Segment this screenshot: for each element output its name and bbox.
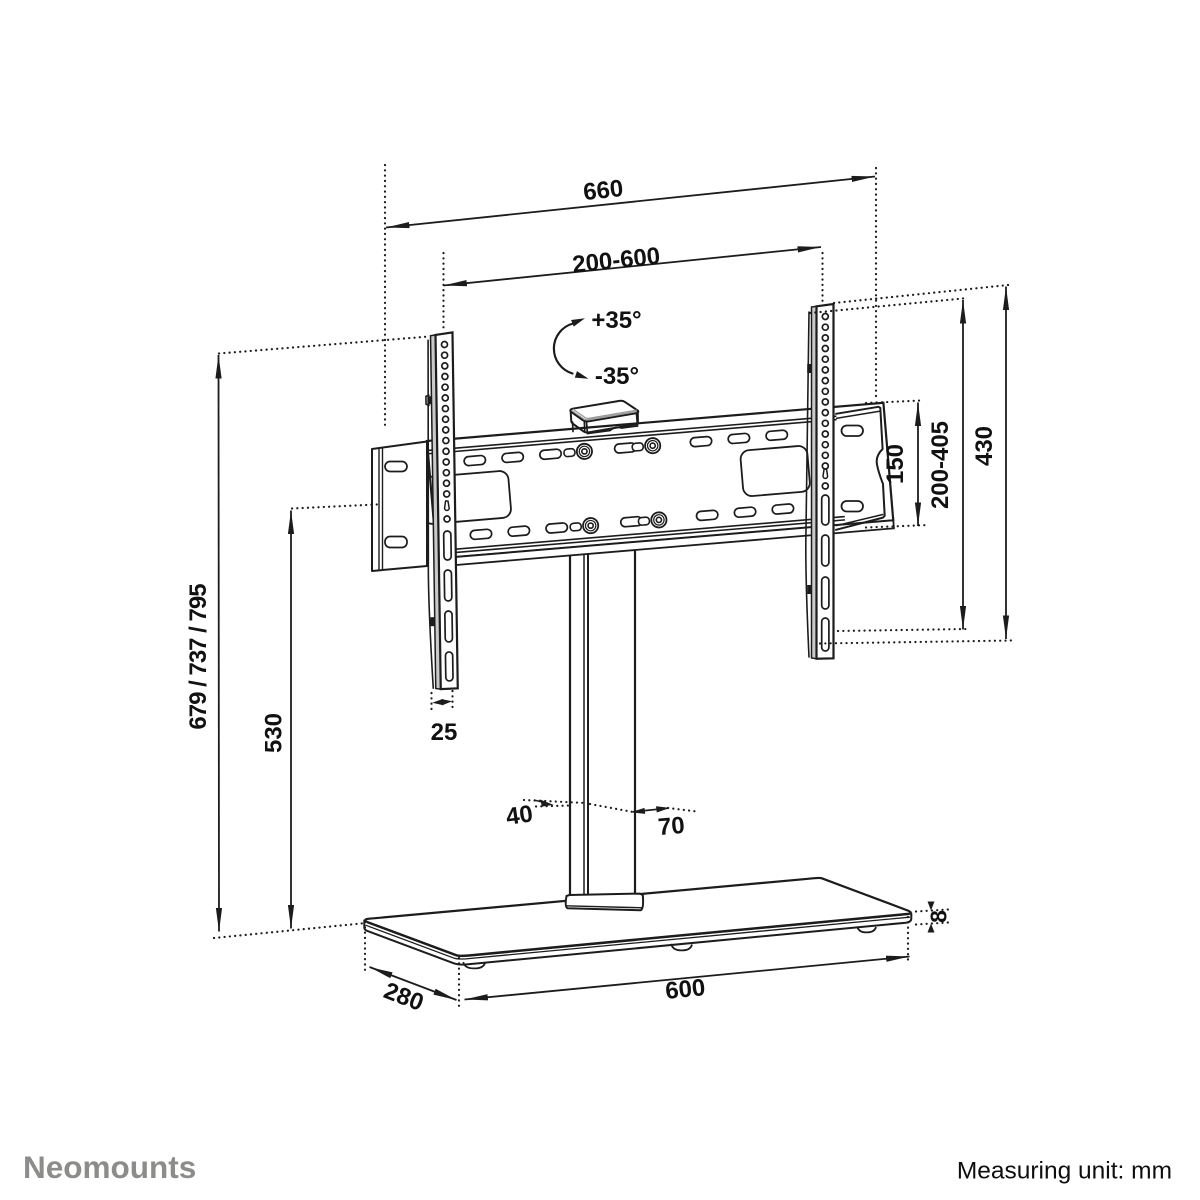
svg-text:679 / 737 / 795: 679 / 737 / 795 bbox=[185, 584, 212, 730]
svg-text:25: 25 bbox=[431, 719, 458, 746]
svg-text:530: 530 bbox=[261, 713, 288, 753]
svg-text:8: 8 bbox=[926, 910, 952, 923]
svg-text:200-405: 200-405 bbox=[927, 421, 954, 509]
svg-text:+35°: +35° bbox=[591, 307, 641, 334]
svg-text:70: 70 bbox=[657, 812, 686, 841]
svg-text:-35°: -35° bbox=[595, 363, 639, 390]
svg-text:200-600: 200-600 bbox=[571, 243, 661, 279]
svg-text:150: 150 bbox=[882, 444, 909, 484]
svg-text:Neomounts: Neomounts bbox=[23, 1149, 196, 1185]
svg-text:660: 660 bbox=[582, 175, 625, 206]
svg-text:280: 280 bbox=[380, 977, 427, 1017]
svg-text:600: 600 bbox=[664, 974, 706, 1005]
svg-text:40: 40 bbox=[504, 800, 534, 830]
svg-text:430: 430 bbox=[971, 426, 998, 466]
svg-text:Measuring unit: mm: Measuring unit: mm bbox=[957, 1158, 1172, 1185]
